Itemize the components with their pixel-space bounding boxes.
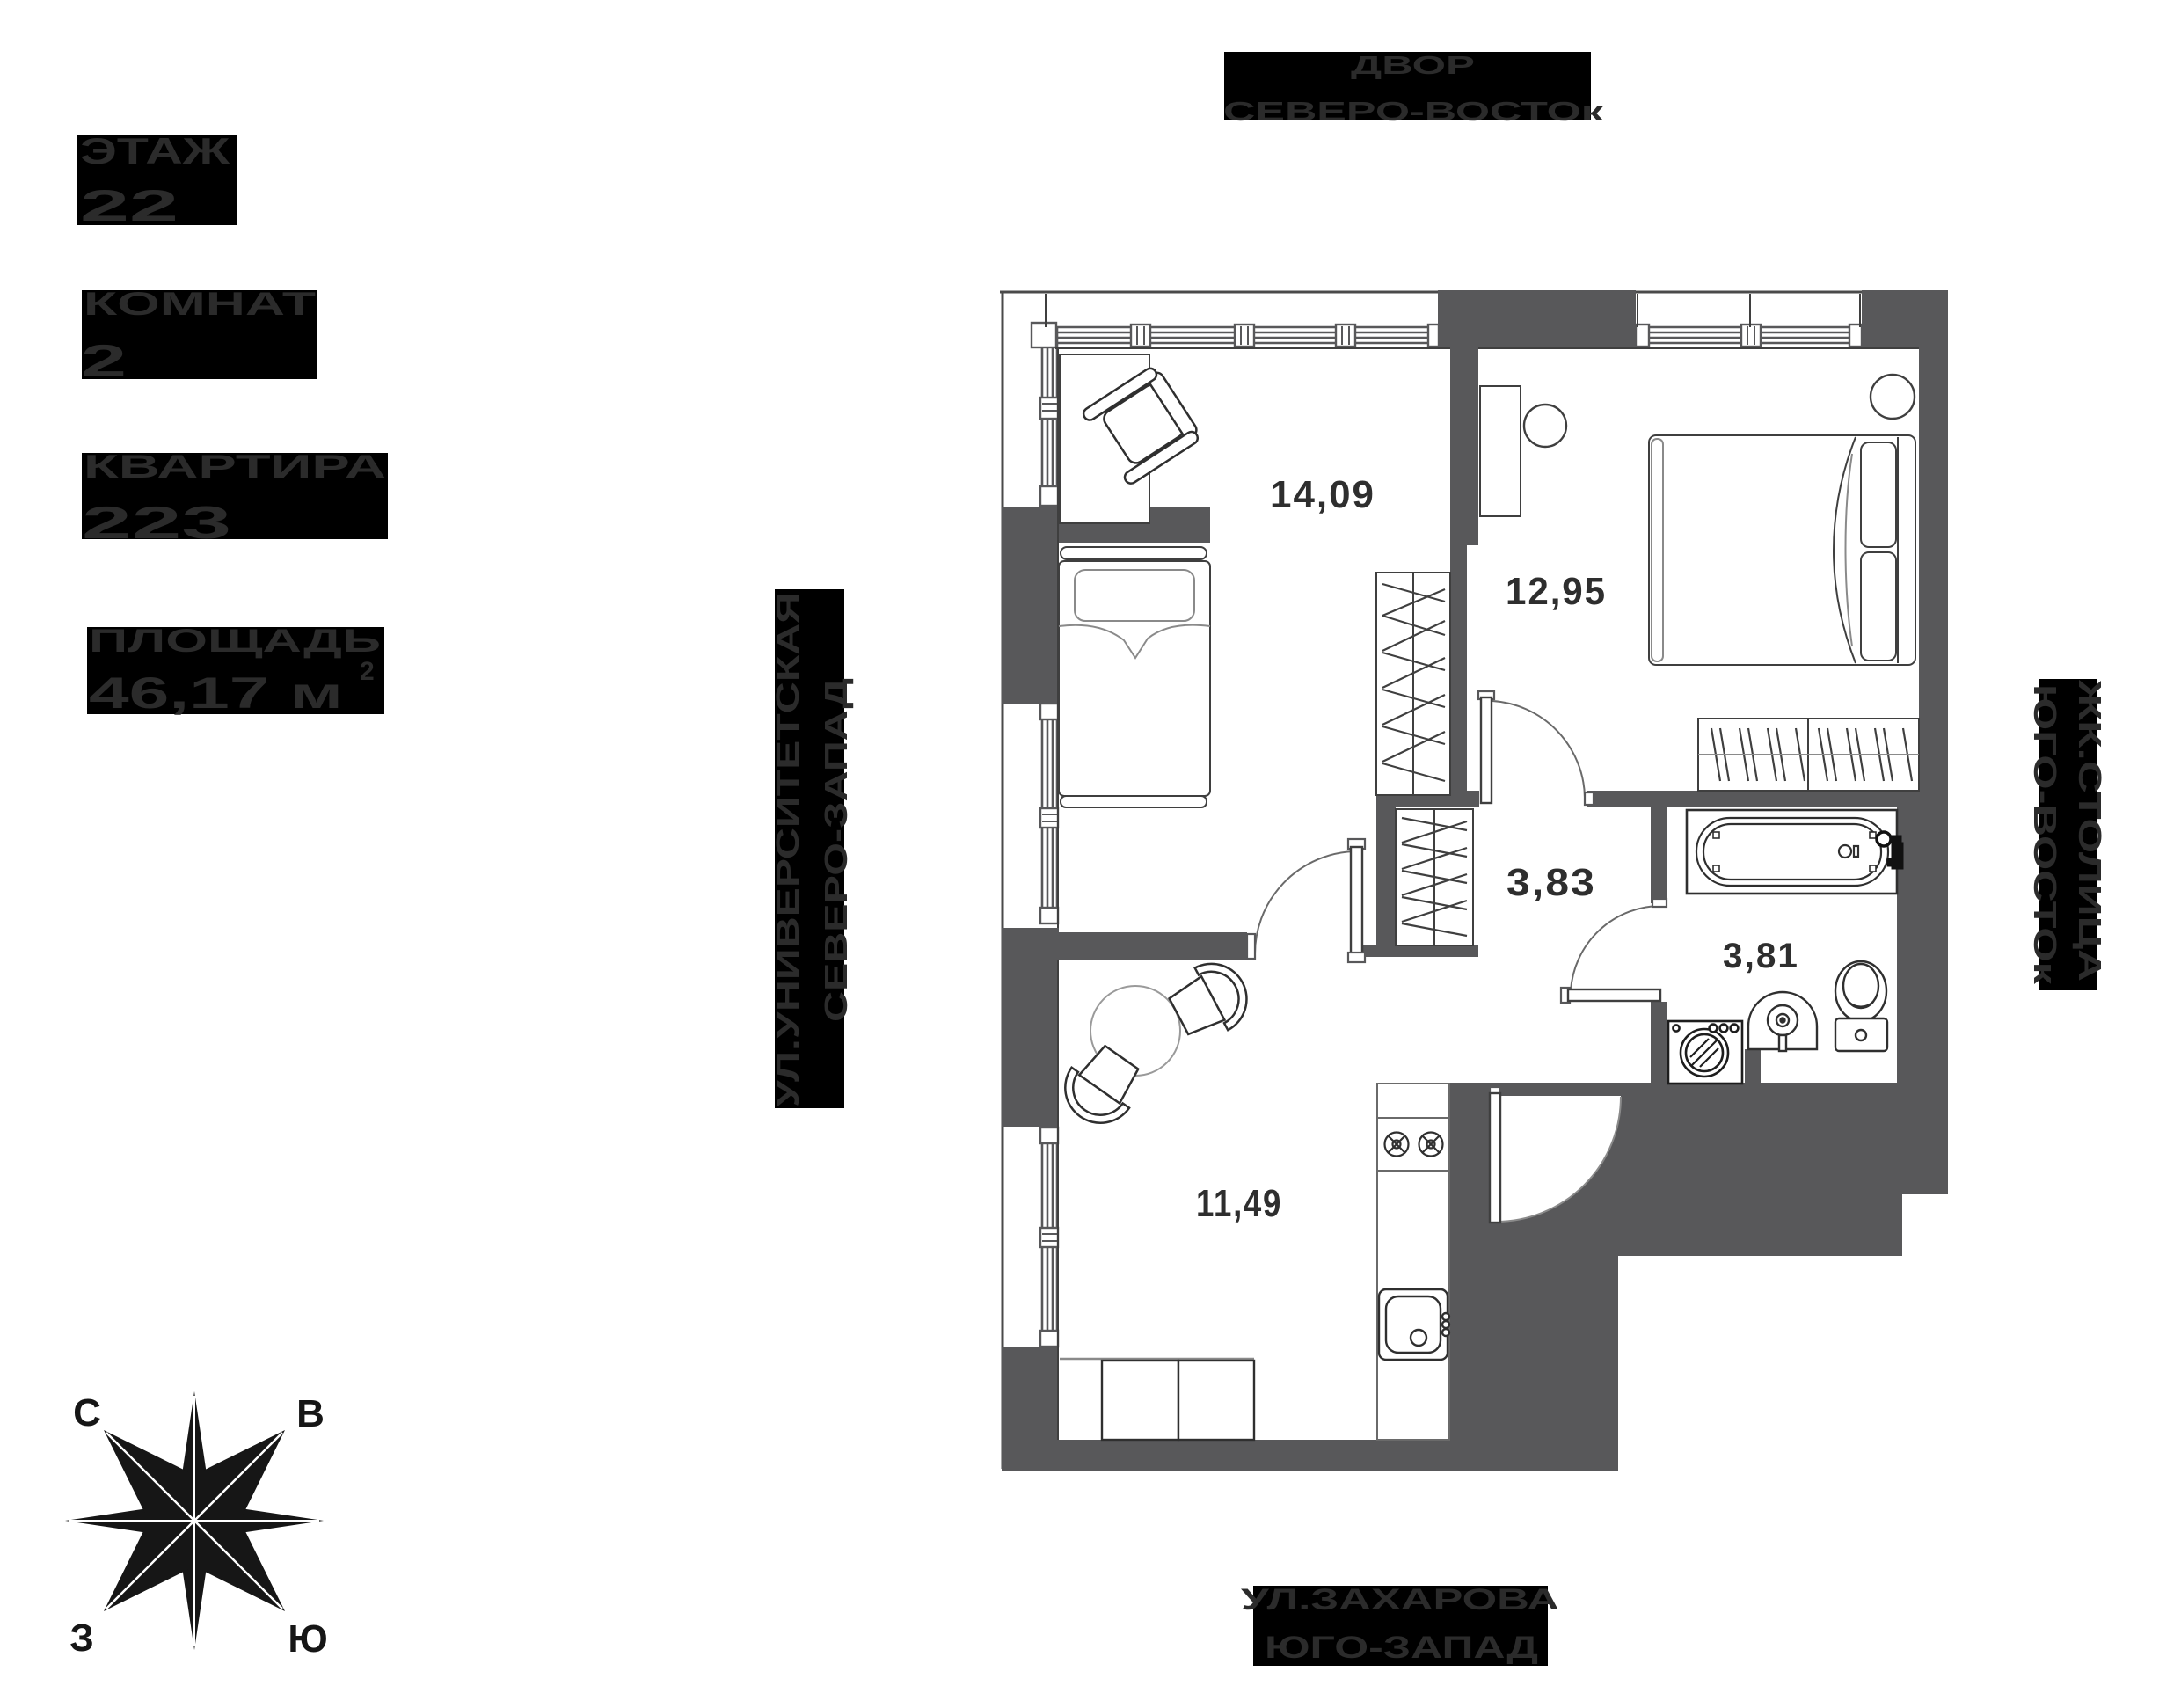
svg-text:3,83: 3,83 — [1506, 861, 1596, 904]
svg-text:2: 2 — [360, 657, 375, 686]
svg-text:УЛ.УНИВЕРСИТЕТСКАЯ: УЛ.УНИВЕРСИТЕТСКАЯ — [770, 592, 806, 1107]
svg-text:ЖК.СТОЛИЦА: ЖК.СТОЛИЦА — [2072, 679, 2108, 982]
svg-text:22: 22 — [80, 181, 179, 230]
svg-text:12,95: 12,95 — [1506, 570, 1607, 613]
svg-text:ЮГО-ВОСТОк: ЮГО-ВОСТОк — [2027, 684, 2063, 985]
svg-text:КВАРТИРА: КВАРТИРА — [84, 449, 386, 485]
svg-text:223: 223 — [82, 498, 231, 549]
svg-text:В: В — [296, 1392, 325, 1435]
svg-text:С: С — [73, 1391, 101, 1434]
svg-text:3,81: 3,81 — [1723, 937, 1799, 975]
svg-text:ПЛОЩАДЬ: ПЛОЩАДЬ — [89, 623, 381, 659]
svg-text:УЛ.ЗАХАРОВА: УЛ.ЗАХАРОВА — [1241, 1583, 1559, 1617]
svg-text:Ю: Ю — [288, 1617, 327, 1661]
svg-text:14,09: 14,09 — [1270, 473, 1375, 516]
svg-text:СЕВЕРО-ВОСТОк: СЕВЕРО-ВОСТОк — [1223, 96, 1604, 127]
svg-text:46,17 м: 46,17 м — [89, 668, 343, 718]
svg-text:ЮГО-ЗАПАД: ЮГО-ЗАПАД — [1265, 1631, 1538, 1665]
svg-text:2: 2 — [81, 336, 127, 387]
svg-text:З: З — [69, 1617, 94, 1660]
svg-text:ЭТАЖ: ЭТАЖ — [80, 130, 230, 172]
svg-text:11,49: 11,49 — [1196, 1182, 1282, 1225]
svg-text:СЕВЕРО-ЗАПАД: СЕВЕРО-ЗАПАД — [818, 678, 854, 1022]
svg-text:КОМНАТ: КОМНАТ — [84, 286, 317, 322]
svg-text:ДВОР: ДВОР — [1351, 52, 1475, 80]
